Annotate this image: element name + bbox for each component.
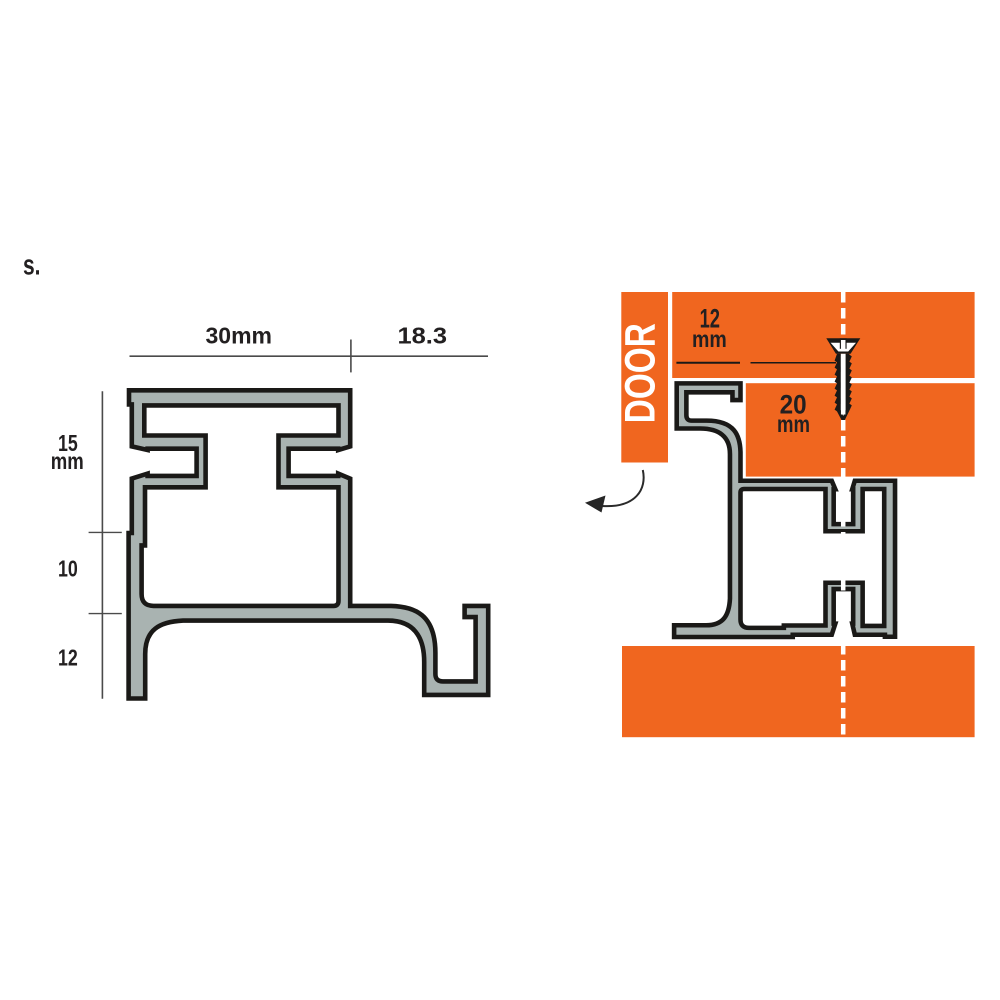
svg-text:mm: mm [51, 448, 84, 474]
svg-text:12: 12 [58, 644, 78, 670]
svg-text:mm: mm [692, 326, 727, 352]
svg-text:s.: s. [23, 250, 41, 282]
svg-text:10: 10 [58, 555, 78, 581]
svg-text:DOOR: DOOR [617, 323, 665, 423]
svg-text:18.3: 18.3 [398, 323, 448, 349]
svg-text:mm: mm [777, 411, 810, 437]
svg-text:30mm: 30mm [206, 323, 273, 349]
